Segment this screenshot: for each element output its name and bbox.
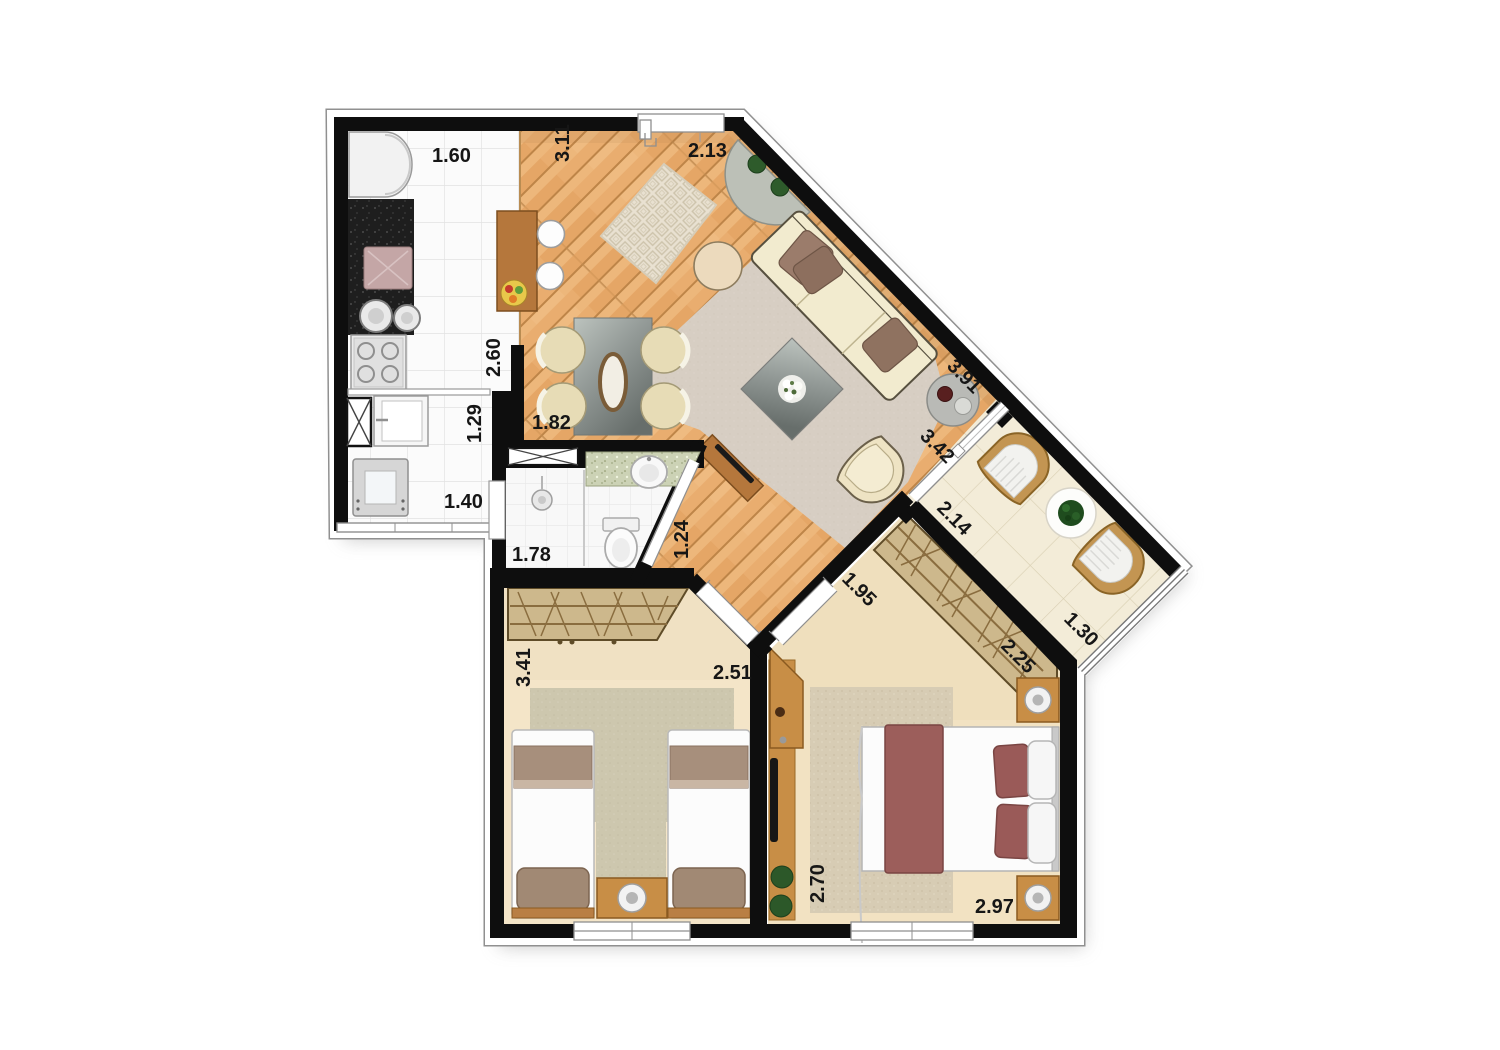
svg-text:3.11: 3.11 [552,124,574,162]
svg-text:1.24: 1.24 [671,519,693,559]
svg-text:2.13: 2.13 [688,140,727,162]
svg-text:1.82: 1.82 [532,412,571,434]
svg-text:1.78: 1.78 [512,544,551,566]
svg-text:3.41: 3.41 [513,648,535,687]
svg-text:2.51: 2.51 [713,662,752,684]
svg-text:2.70: 2.70 [807,864,829,903]
svg-text:2.97: 2.97 [975,896,1014,918]
svg-text:1.60: 1.60 [432,145,471,167]
svg-text:1.29: 1.29 [464,404,486,443]
svg-text:2.60: 2.60 [483,338,505,377]
svg-text:1.40: 1.40 [444,491,483,513]
